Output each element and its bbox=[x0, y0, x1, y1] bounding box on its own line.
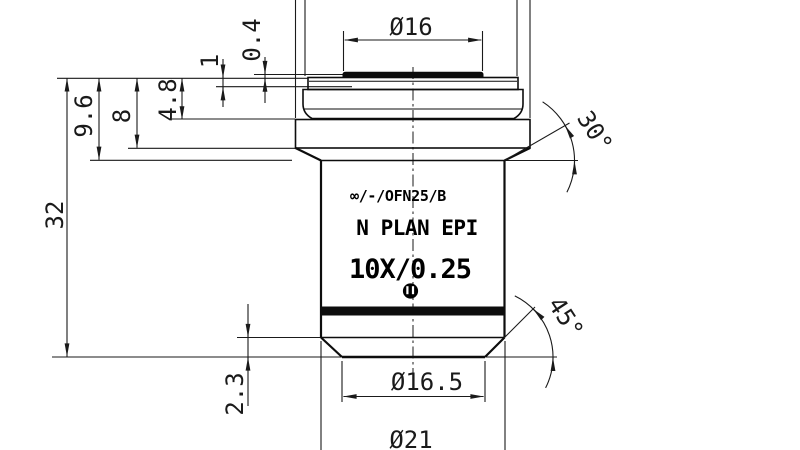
label-diameter-16: Ø16 bbox=[389, 13, 432, 41]
label-0.4: 0.4 bbox=[238, 18, 266, 61]
angle-dimension-30deg bbox=[505, 102, 575, 193]
tip-chamfer-right-45deg bbox=[485, 338, 505, 358]
label-2.3: 2.3 bbox=[221, 372, 249, 415]
engraving-dot-icon bbox=[403, 283, 418, 298]
angle-30-slant-line bbox=[505, 123, 570, 161]
label-1: 1 bbox=[196, 54, 224, 68]
angle-30-arrow-upper bbox=[565, 126, 568, 131]
angle-45-slant-line bbox=[505, 307, 536, 338]
angle-30-arc bbox=[543, 102, 575, 193]
label-4.8: 4.8 bbox=[154, 78, 182, 121]
drawing-canvas: ∞/-/OFN25/B N PLAN EPI 10X/0.25 bbox=[0, 0, 800, 450]
engraving-optical-spec: ∞/-/OFN25/B bbox=[350, 187, 446, 205]
label-diameter-16.5: Ø16.5 bbox=[391, 368, 463, 396]
label-angle-30: 30° bbox=[571, 106, 618, 158]
technical-drawing-page: ∞/-/OFN25/B N PLAN EPI 10X/0.25 bbox=[0, 0, 800, 450]
tip-chamfer-left-45deg bbox=[321, 338, 342, 358]
label-32: 32 bbox=[41, 201, 69, 230]
engraving-series-name: N PLAN EPI bbox=[356, 216, 477, 240]
magnification-color-ring bbox=[320, 307, 506, 316]
label-diameter-21: Ø21 bbox=[389, 426, 432, 450]
extension-lines bbox=[52, 0, 578, 450]
label-9.6: 9.6 bbox=[70, 94, 98, 137]
angle-45-arrow-upper bbox=[533, 309, 537, 313]
label-8: 8 bbox=[108, 109, 136, 123]
flange-chamfer-left-30deg bbox=[296, 148, 322, 161]
engraving-magnification-na: 10X/0.25 bbox=[349, 254, 471, 285]
